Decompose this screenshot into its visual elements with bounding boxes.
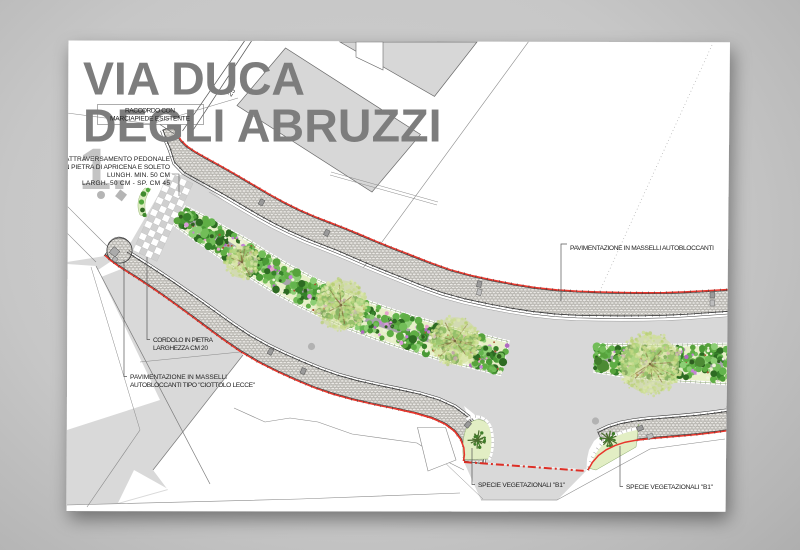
svg-text:AUTOBLOCCANTI TIPO "CIOTTOLO L: AUTOBLOCCANTI TIPO "CIOTTOLO LECCE": [130, 382, 256, 389]
svg-text:SPECIE VEGETAZIONALI "B1": SPECIE VEGETAZIONALI "B1": [626, 484, 714, 491]
svg-text:SPECIE VEGETAZIONALI "B1": SPECIE VEGETAZIONALI "B1": [478, 482, 566, 489]
svg-text:PAVIMENTAZIONE IN MASSELLI AUT: PAVIMENTAZIONE IN MASSELLI AUTOBLOCCANTI: [570, 245, 714, 252]
svg-text:LARGH. 50 CM - SP. CM 45: LARGH. 50 CM - SP. CM 45: [82, 180, 170, 187]
svg-text:RACCORDO CON: RACCORDO CON: [125, 108, 175, 115]
svg-text:VIA DUCA: VIA DUCA: [83, 53, 306, 105]
svg-text:ATTRAVERSAMENTO PEDONALE: ATTRAVERSAMENTO PEDONALE: [65, 156, 171, 163]
svg-text:MARCIAPIEDE ESISTENTE: MARCIAPIEDE ESISTENTE: [110, 116, 191, 123]
svg-text:LARGHEZZA CM 20: LARGHEZZA CM 20: [153, 345, 208, 352]
svg-text:IN PIETRA DI APRICENA E SOLETO: IN PIETRA DI APRICENA E SOLETO: [63, 164, 170, 171]
svg-text:CORDOLO IN PIETRA: CORDOLO IN PIETRA: [153, 337, 214, 344]
svg-text:LUNGH. MIN. 50 CM: LUNGH. MIN. 50 CM: [107, 172, 170, 179]
svg-text:PAVIMENTAZIONE IN MASSELLI: PAVIMENTAZIONE IN MASSELLI: [130, 374, 227, 381]
